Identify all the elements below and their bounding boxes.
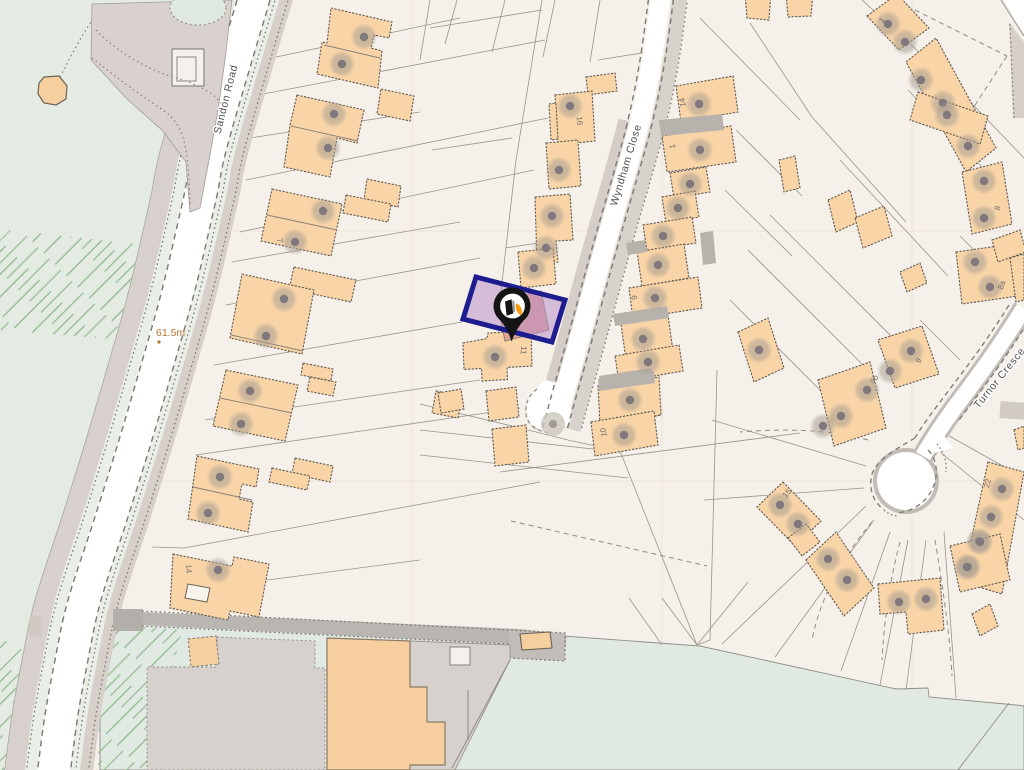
svg-text:16: 16 — [575, 116, 585, 126]
svg-text:61.5m: 61.5m — [156, 327, 185, 339]
svg-text:11: 11 — [519, 346, 529, 356]
svg-text:14: 14 — [184, 564, 194, 574]
